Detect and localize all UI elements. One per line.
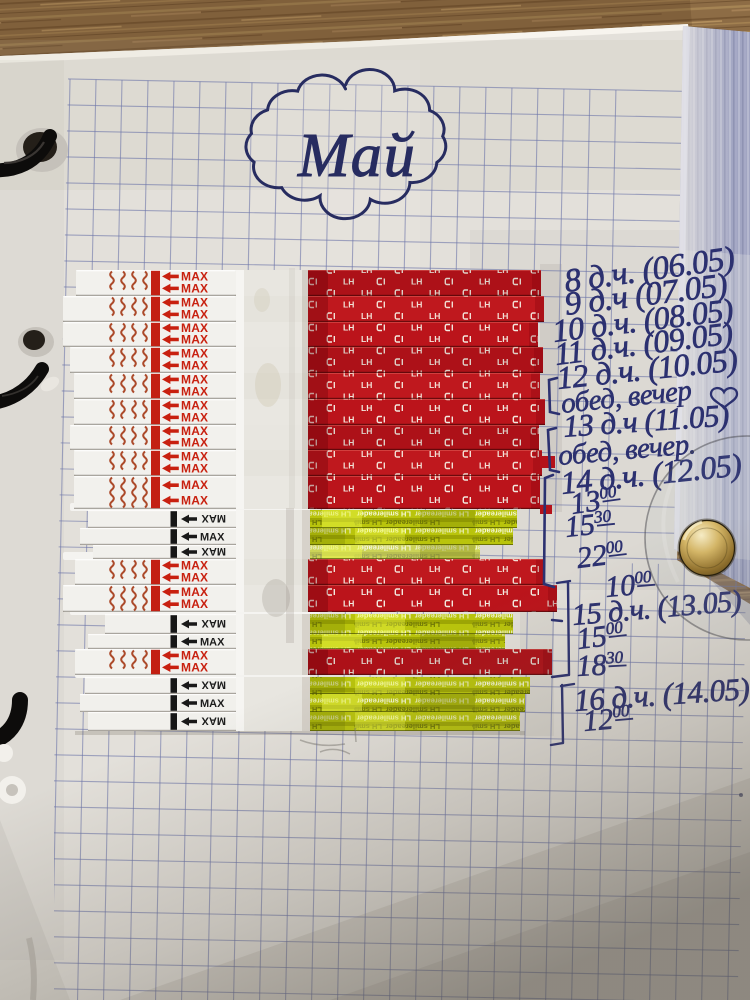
svg-text:MAX: MAX xyxy=(181,358,208,372)
svg-text:MAX: MAX xyxy=(181,461,208,475)
svg-text:Май: Май xyxy=(297,122,417,190)
svg-text:MAX: MAX xyxy=(181,493,208,507)
svg-text:MAX: MAX xyxy=(181,436,208,450)
svg-text:MAX: MAX xyxy=(181,384,208,398)
svg-text:MAX: MAX xyxy=(181,281,208,295)
svg-text:MAX: MAX xyxy=(181,333,208,347)
svg-text:MAX: MAX xyxy=(181,410,208,424)
svg-text:MAX: MAX xyxy=(181,478,208,492)
svg-text:MAX: MAX xyxy=(181,307,208,321)
